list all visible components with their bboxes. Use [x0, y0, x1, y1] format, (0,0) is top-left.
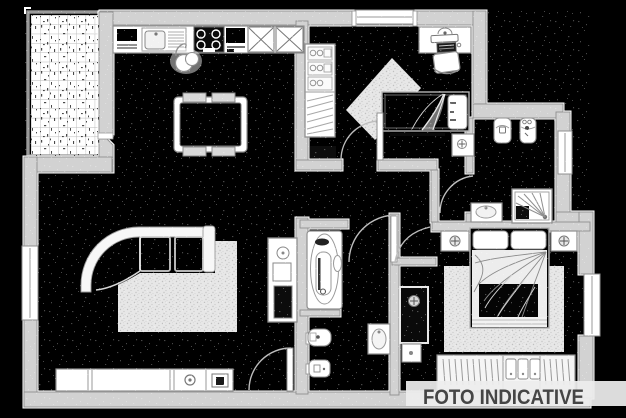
svg-text:FOTO INDICATIVE: FOTO INDICATIVE — [423, 385, 584, 409]
